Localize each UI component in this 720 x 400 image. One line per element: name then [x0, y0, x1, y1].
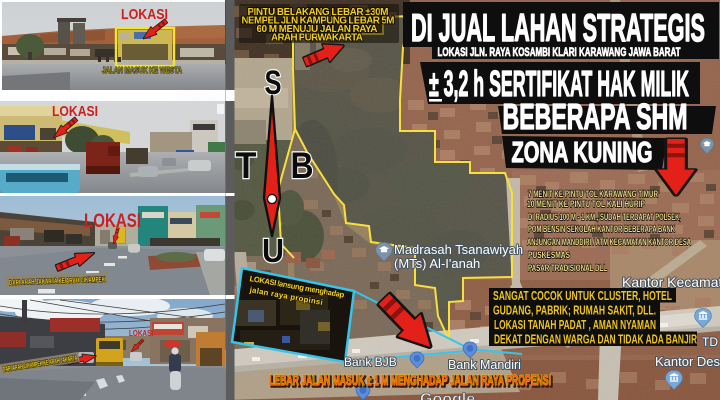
svg-text:GUDANG, PABRIK; RUMAH SAKIT, D: GUDANG, PABRIK; RUMAH SAKIT, DLL.	[493, 303, 656, 318]
svg-text:T: T	[236, 145, 257, 186]
svg-text:ZONA KUNING: ZONA KUNING	[512, 137, 653, 169]
svg-text:DEKAT DENGAN WARGA DAN TIDAK A: DEKAT DENGAN WARGA DAN TIDAK ADA BANJIR	[494, 332, 697, 347]
svg-text:PASAR TRADISIONAL DLL: PASAR TRADISIONAL DLL	[528, 263, 607, 274]
svg-text:TD: TD	[702, 335, 718, 349]
svg-text:DI RADIUS 100 M - 1 KM., SUDAH: DI RADIUS 100 M - 1 KM., SUDAH TERDAPAT …	[528, 212, 681, 223]
svg-text:(MTs) Al-I'anah: (MTs) Al-I'anah	[394, 256, 480, 271]
svg-text:U: U	[262, 232, 284, 269]
svg-text:LOKASI TANAH PADAT , AMAN NYAM: LOKASI TANAH PADAT , AMAN NYAMAN	[494, 317, 656, 332]
svg-text:Google: Google	[420, 391, 475, 400]
svg-text:POM BENSIN SEKOLAH KANTOR BEBE: POM BENSIN SEKOLAH KANTOR BEBERAPA BANK	[528, 224, 675, 235]
svg-text:Madrasah Tsanawiyah: Madrasah Tsanawiyah	[394, 242, 523, 257]
svg-text:Bank Mandiri: Bank Mandiri	[448, 358, 521, 372]
svg-text:JALAN MASUK KE WESTA: JALAN MASUK KE WESTA	[102, 65, 182, 75]
svg-text:ANJUNGAN MANDDIRI / ATM KECAM: ANJUNGAN MANDDIRI / ATM KECAMATAN KANTOR…	[527, 237, 691, 248]
svg-text:B: B	[291, 145, 314, 186]
svg-text:ARAH PURWAKARTA: ARAH PURWAKARTA	[271, 33, 363, 44]
svg-text:Kantor Des: Kantor Des	[655, 354, 720, 369]
svg-text:LOKASI: LOKASI	[84, 211, 141, 232]
svg-text:PUSKESMAS: PUSKESMAS	[528, 250, 570, 261]
svg-text:BEBERAPA SHM: BEBERAPA SHM	[503, 96, 688, 137]
svg-text:LOKASI: LOKASI	[129, 328, 153, 338]
svg-text:DI JUAL LAHAN STRATEGIS: DI JUAL LAHAN STRATEGIS	[411, 7, 705, 50]
svg-text:LOKASI JLN. RAYA KOSAMBI KLARI: LOKASI JLN. RAYA KOSAMBI KLARI KARAWANG …	[438, 47, 681, 59]
svg-text:SANGAT COCOK UNTUK CLUSTER, HO: SANGAT COCOK UNTUK CLUSTER, HOTEL	[493, 288, 672, 303]
svg-text:10 MENIT KE PINTU TOL KALI HUR: 10 MENIT KE PINTU TOL KALI HURIP	[527, 199, 645, 210]
svg-text:LEBAR JALAN MASUK ± 1 M MENGHA: LEBAR JALAN MASUK ± 1 M MENGHADAP JALAN …	[269, 373, 551, 389]
svg-text:LOKASI: LOKASI	[121, 6, 168, 23]
svg-text:Bank BJB: Bank BJB	[344, 355, 397, 369]
